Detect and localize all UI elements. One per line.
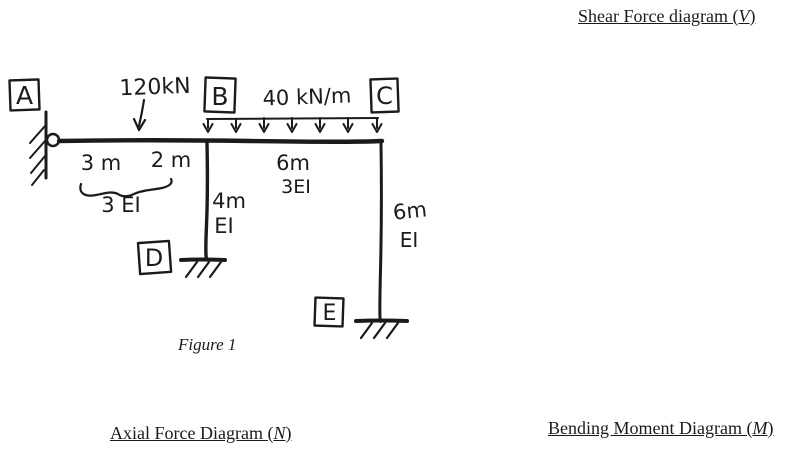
frame-sketch: A B C D E 120kN 40 kN/m 3 m 2 m 3 EI 4m … bbox=[0, 0, 460, 380]
node-label-d: D bbox=[145, 244, 163, 272]
heading-shear-force-diagram: Shear Force diagram (V) bbox=[578, 6, 755, 27]
node-label-b: B bbox=[211, 82, 228, 111]
node-label-a: A bbox=[16, 81, 33, 110]
distributed-load-label: 40 kN/m bbox=[262, 83, 352, 110]
heading-bending-suffix: ) bbox=[767, 418, 773, 438]
heading-shear-symbol: V bbox=[738, 6, 749, 26]
heading-shear-suffix: ) bbox=[749, 6, 755, 26]
stiffness-bc: 3EI bbox=[281, 176, 311, 198]
beam-a-c bbox=[59, 140, 382, 142]
stiffness-ce: EI bbox=[400, 228, 419, 252]
column-c-e bbox=[380, 143, 382, 321]
support-a-wall bbox=[30, 112, 59, 185]
support-e-fixed bbox=[356, 321, 407, 339]
heading-bending-symbol: M bbox=[752, 418, 767, 438]
point-load-label: 120kN bbox=[119, 74, 191, 101]
column-b-d bbox=[206, 143, 208, 259]
heading-axial-suffix: ) bbox=[285, 423, 291, 443]
heading-axial-force-diagram: Axial Force Diagram (N) bbox=[110, 423, 291, 444]
heading-axial-prefix: Axial Force Diagram ( bbox=[110, 423, 273, 443]
node-label-e: E bbox=[323, 301, 337, 326]
distributed-load-arrows bbox=[204, 118, 382, 132]
stiffness-bd: EI bbox=[214, 214, 233, 238]
dim-ab-seg1: 3 m bbox=[81, 151, 122, 175]
point-load-arrow bbox=[134, 100, 145, 130]
node-label-c: C bbox=[376, 82, 393, 110]
support-d-fixed bbox=[181, 260, 225, 278]
heading-bending-moment-diagram: Bending Moment Diagram (M) bbox=[548, 418, 773, 439]
stiffness-ab: 3 EI bbox=[101, 193, 141, 217]
heading-bending-prefix: Bending Moment Diagram ( bbox=[548, 418, 752, 438]
document-page: Shear Force diagram (V) Axial Force Diag… bbox=[0, 0, 807, 454]
heading-axial-symbol: N bbox=[273, 423, 285, 443]
dim-ce-length: 6m bbox=[392, 197, 428, 224]
heading-shear-prefix: Shear Force diagram ( bbox=[578, 6, 738, 26]
dim-bd-length: 4m bbox=[212, 189, 246, 213]
dim-ab-seg2: 2 m bbox=[151, 148, 192, 172]
dim-bc-length: 6m bbox=[276, 151, 310, 175]
